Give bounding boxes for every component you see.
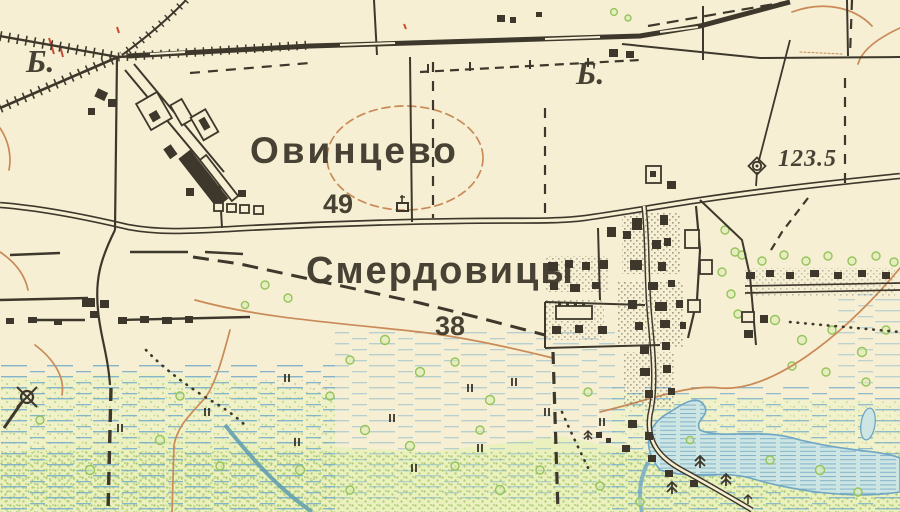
elevation-label: 123.5	[778, 146, 837, 172]
settlement-label-smerdovitsy: Смердовицы	[306, 250, 575, 292]
abbrev-label-left: Б.	[25, 43, 54, 79]
households-number-38: 38	[435, 311, 465, 341]
households-number-49: 49	[323, 189, 353, 219]
map-canvas[interactable]: Овинцево 49 Смердовицы 38 123.5 Б. Б.	[0, 0, 900, 512]
abbrev-label-right: Б.	[575, 55, 604, 91]
settlement-label-ovintsevo: Овинцево	[250, 130, 459, 171]
map-image: Овинцево 49 Смердовицы 38 123.5 Б. Б.	[0, 0, 900, 512]
